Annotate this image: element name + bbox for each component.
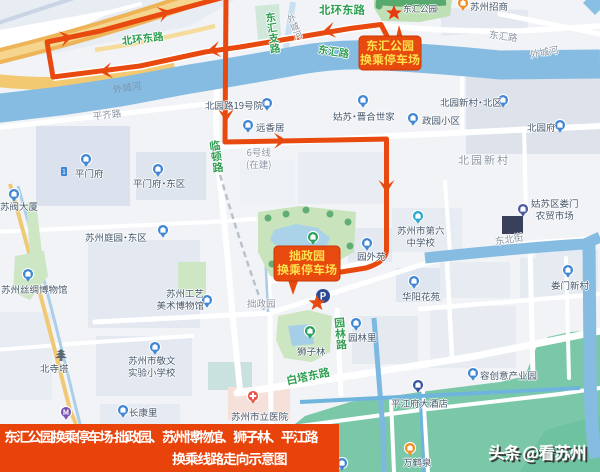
svg-text:1: 1 xyxy=(62,167,66,177)
svg-text:M: M xyxy=(63,407,69,418)
